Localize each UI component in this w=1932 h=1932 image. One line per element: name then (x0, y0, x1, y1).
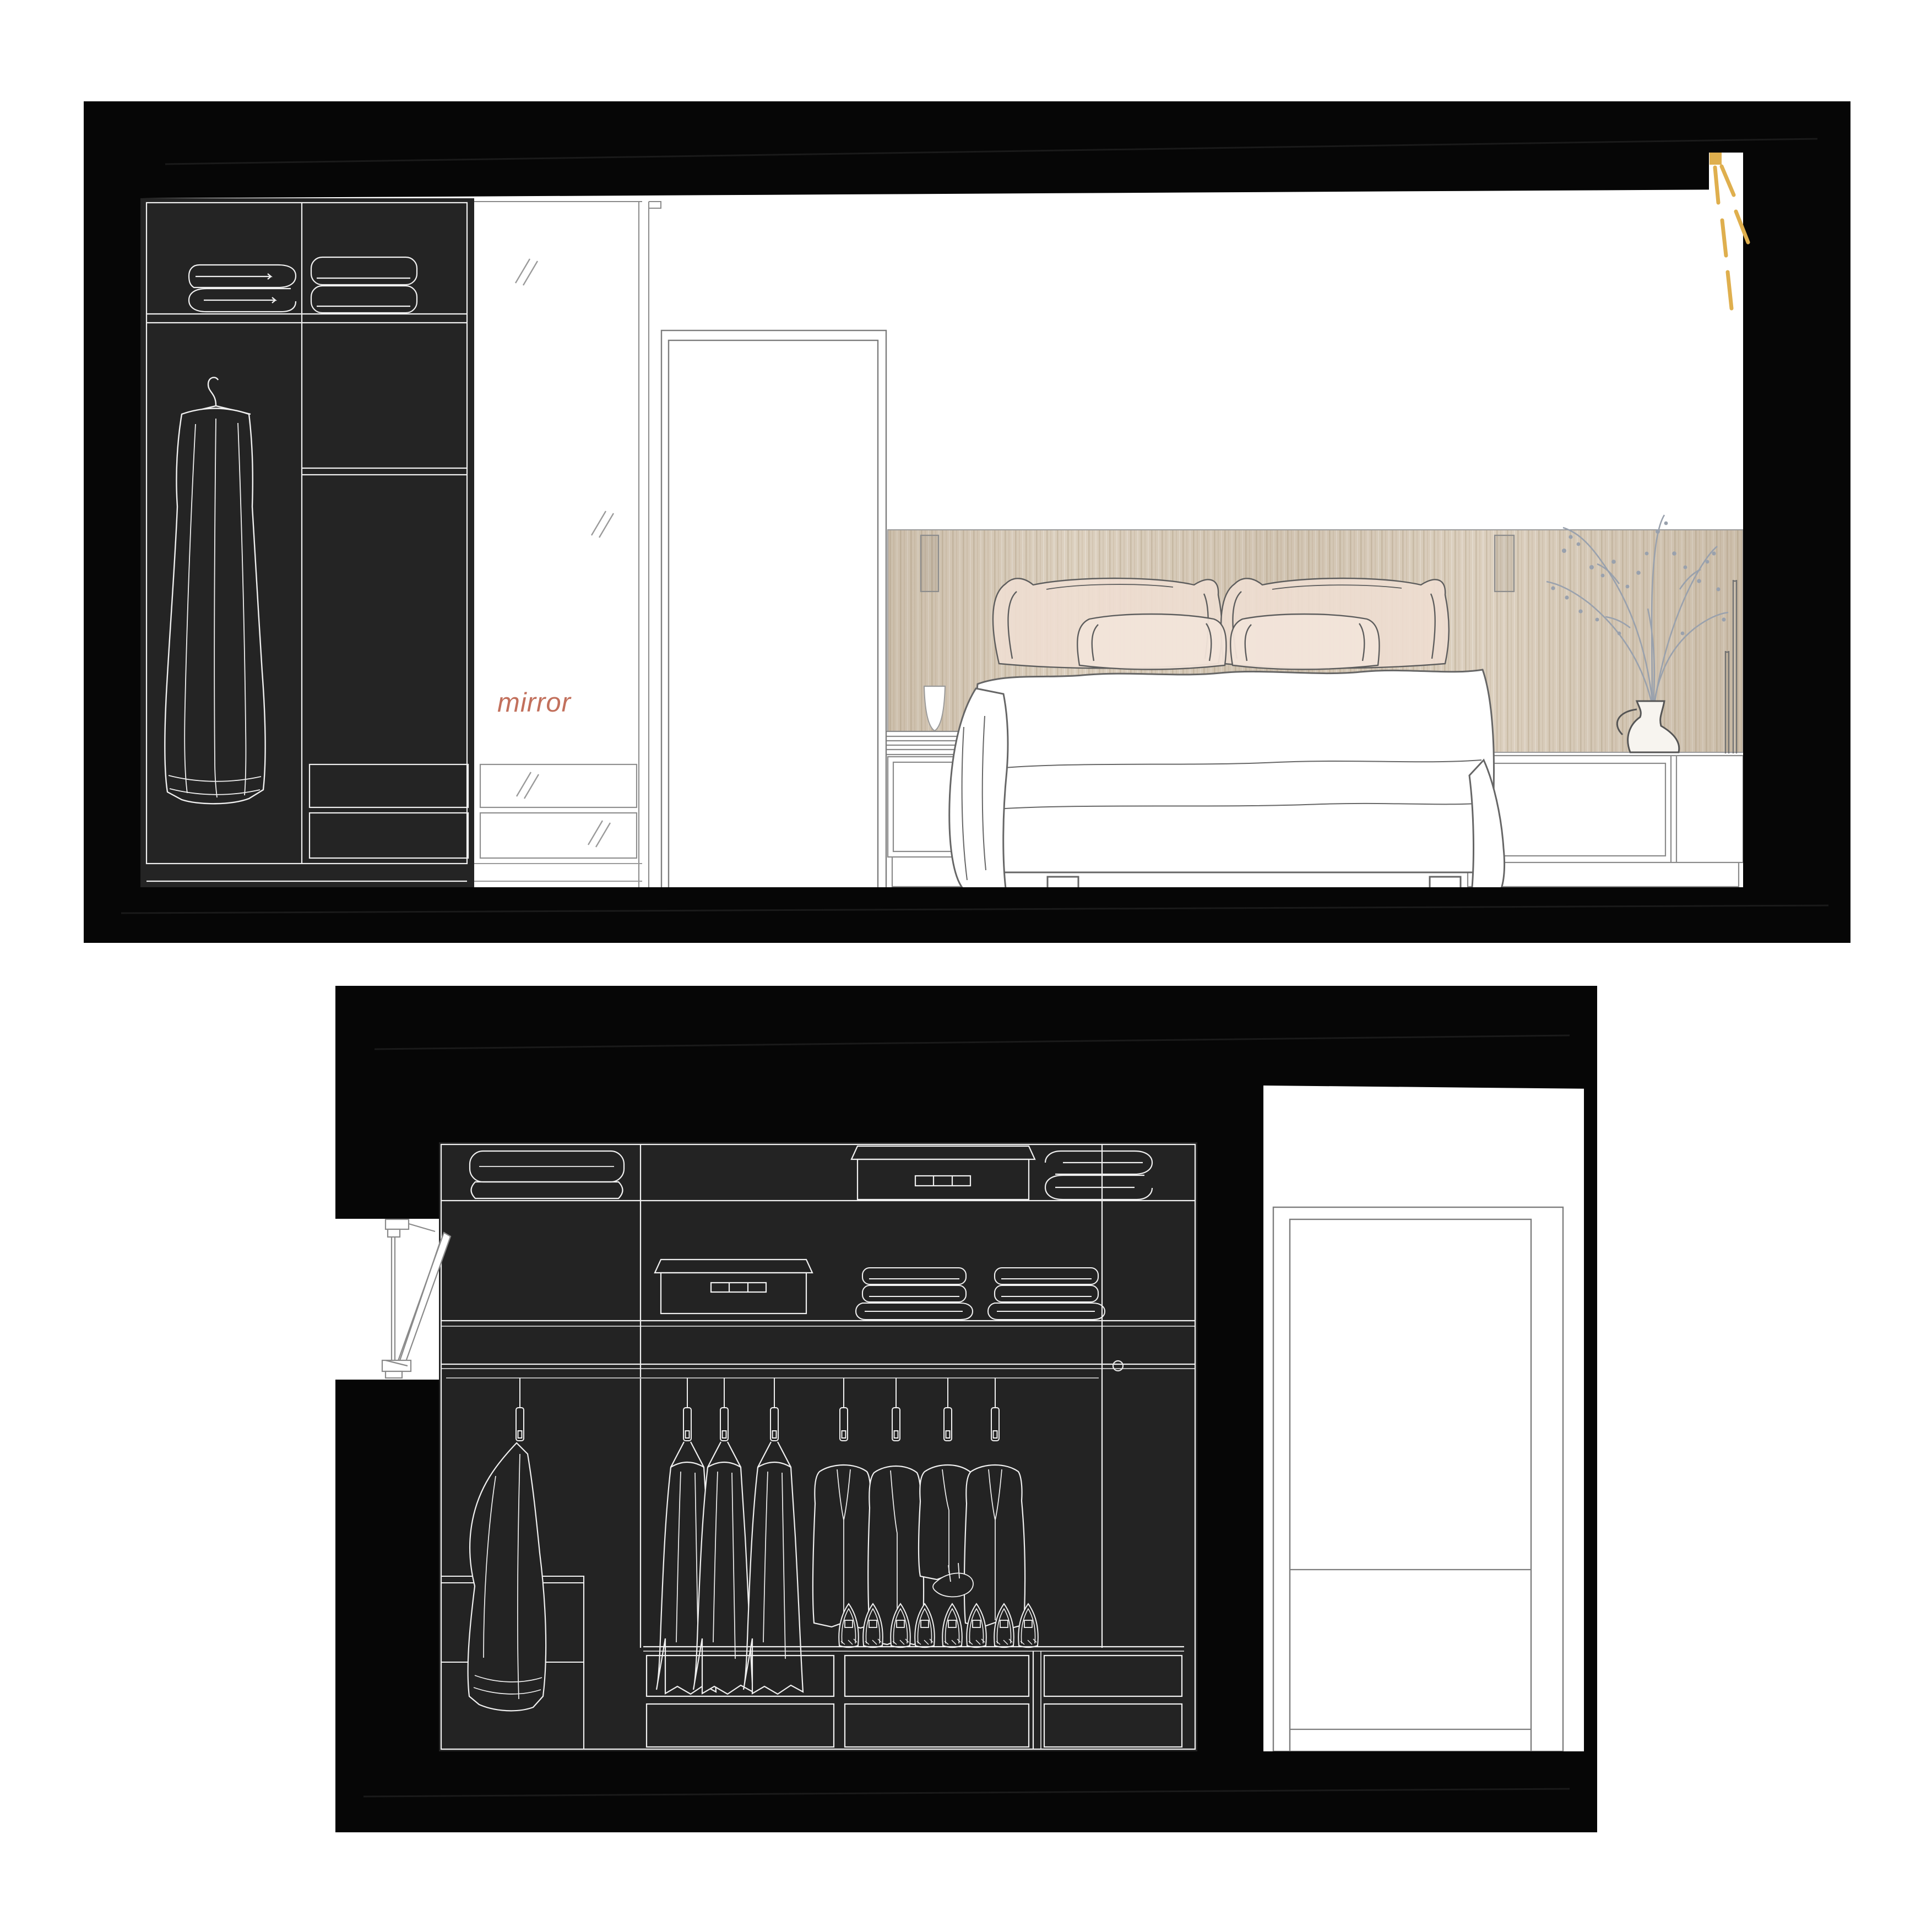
light-ray (1722, 220, 1726, 256)
partition-wall (1197, 1087, 1263, 1751)
long-coat (964, 1465, 1025, 1628)
tall-door (661, 330, 886, 888)
floor-band (84, 887, 1850, 943)
mirror-drawer-1 (480, 764, 637, 807)
left-wall-upper (335, 986, 439, 1219)
long-coat (813, 1465, 873, 1628)
sideboard (1463, 756, 1743, 887)
wall-mirror-pocket (335, 1219, 451, 1380)
duvet (949, 670, 1505, 893)
glass-hatch (515, 259, 538, 285)
left-wall-band (84, 101, 140, 943)
closet-unit (439, 1142, 1197, 1751)
mirror-label: mirror (497, 688, 572, 718)
mirror-drawer-2 (480, 813, 637, 858)
bedroom-elevation-panel: mirror (84, 101, 1850, 943)
right-wall-band (1743, 101, 1850, 943)
bed-foot-right (1430, 877, 1461, 888)
bed (949, 578, 1505, 893)
wardrobe-dark (140, 198, 474, 888)
light-ray (1728, 272, 1732, 308)
floor-band (335, 1751, 1597, 1832)
closet-door (1263, 1087, 1584, 1751)
glass-hatch (591, 511, 614, 538)
right-wall-band (1584, 986, 1597, 1832)
door-leaf (1290, 1219, 1531, 1751)
elevation-sheet: mirror (0, 0, 1932, 1932)
ceiling-band (84, 101, 1850, 198)
bed-foot-left (1048, 877, 1078, 888)
headboard-niche-left (921, 535, 938, 591)
closet-elevation-panel (335, 986, 1597, 1832)
mirror-wardrobe-column: mirror (474, 202, 661, 888)
hanging-dress (165, 377, 265, 804)
headboard-niche-right (1495, 535, 1514, 591)
